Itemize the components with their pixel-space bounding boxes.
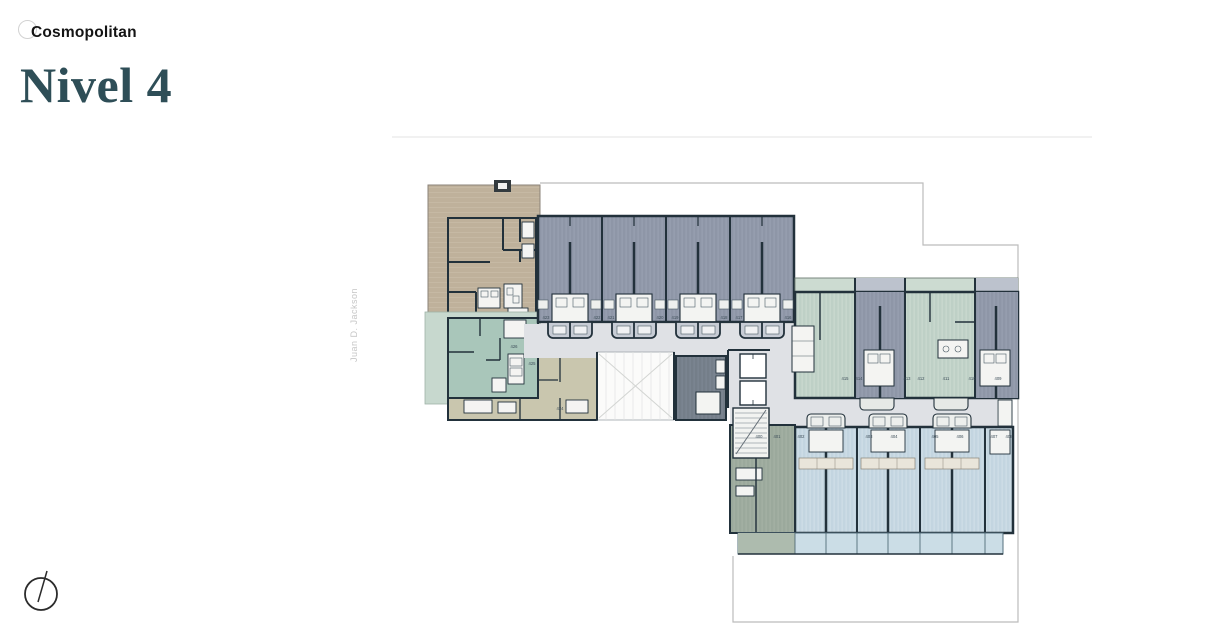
unit-label: 423 xyxy=(543,315,551,320)
unit-label: 410 xyxy=(969,376,977,381)
unit-label: 402 xyxy=(798,434,806,439)
unit-label: 401 xyxy=(774,434,782,439)
top-unit-band xyxy=(538,216,794,338)
unit-label: 422 xyxy=(594,315,602,320)
unit-label: 425 xyxy=(529,361,537,366)
floor-plan: 423 422 421 420 419 418 417 416 415 414 … xyxy=(0,0,1213,643)
stairs xyxy=(733,408,769,458)
core-unit xyxy=(676,356,726,420)
unit-label: 412 xyxy=(918,376,926,381)
unit-label: 424 xyxy=(557,406,565,411)
atrium xyxy=(597,352,674,420)
unit-label: 416 xyxy=(785,315,793,320)
central-core xyxy=(597,350,770,458)
unit-label: 420 xyxy=(657,315,665,320)
unit-label: 415 xyxy=(842,376,850,381)
unit-label: 406 xyxy=(957,434,965,439)
street-label: Juan D. Jackson xyxy=(349,288,359,362)
balcony-row-bottom xyxy=(738,533,1003,554)
unit-label: 417 xyxy=(736,315,744,320)
unit-label: 414 xyxy=(856,376,864,381)
unit-label: 418 xyxy=(721,315,729,320)
unit-label: 426 xyxy=(511,344,519,349)
unit-label: 407 xyxy=(991,434,999,439)
unit-label: 419 xyxy=(672,315,680,320)
right-top-band xyxy=(792,278,1018,410)
unit-label: 421 xyxy=(608,315,616,320)
unit-label: 405 xyxy=(932,434,940,439)
unit-label: 408 xyxy=(1006,434,1014,439)
unit-label: 404 xyxy=(891,434,899,439)
unit-label: 403 xyxy=(866,434,874,439)
unit-label: 400 xyxy=(756,434,764,439)
unit-label: 409 xyxy=(995,376,1003,381)
unit-label: 411 xyxy=(943,376,950,381)
unit-label: 413 xyxy=(904,376,912,381)
north-arrow-icon xyxy=(25,571,57,610)
